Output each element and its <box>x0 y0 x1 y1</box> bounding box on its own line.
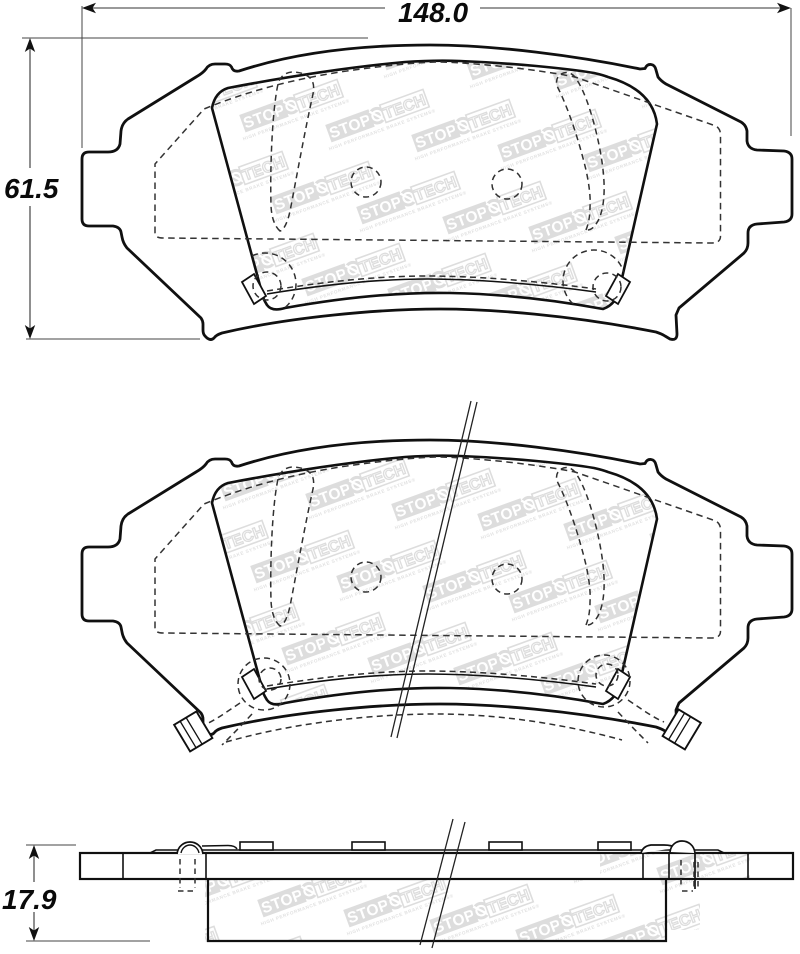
svg-text:148.0: 148.0 <box>398 0 468 28</box>
svg-text:61.5: 61.5 <box>4 173 59 204</box>
svg-text:17.9: 17.9 <box>2 884 57 915</box>
